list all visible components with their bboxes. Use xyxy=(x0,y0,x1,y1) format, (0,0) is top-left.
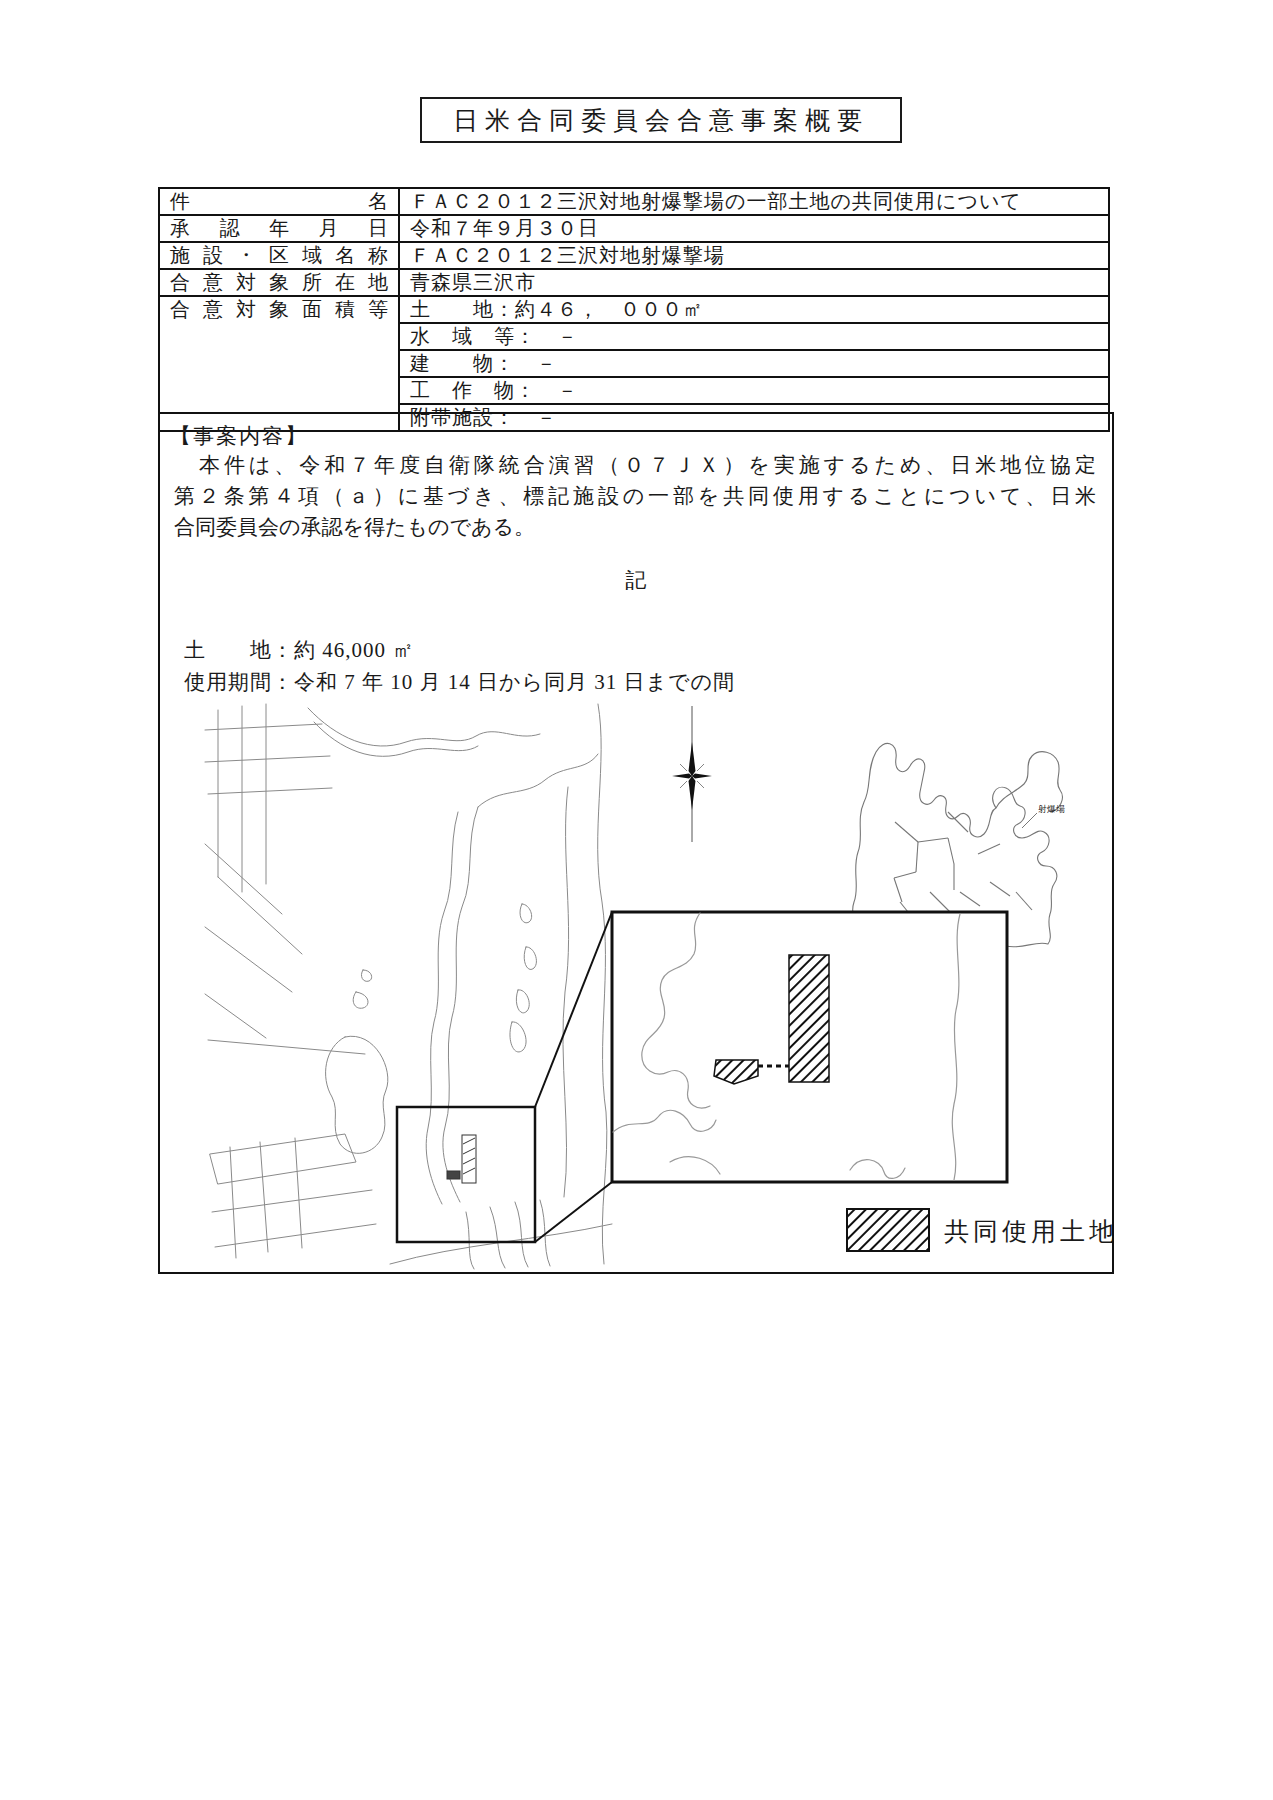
legend-hatch-swatch xyxy=(847,1209,929,1251)
aomori-map-label: 射爆場 xyxy=(1038,804,1065,814)
ki-marker: 記 xyxy=(160,566,1112,594)
land-area-line: 土 地：約 46,000 ㎡ xyxy=(184,636,414,664)
table-row: 合意対象所在地 青森県三沢市 xyxy=(159,269,1109,296)
row-facility-label: 施設・区域名称 xyxy=(159,242,399,269)
legend-label: 共同使用土地 xyxy=(944,1218,1112,1245)
case-content-heading: 【事案内容】 xyxy=(170,422,308,450)
compass-rose-icon xyxy=(672,706,712,842)
row-area-label: 合意対象面積等 xyxy=(159,296,399,431)
row-area-land: 土 地：約４６， ０００㎡ xyxy=(399,296,1109,323)
table-row: 承認年月日 令和７年９月３０日 xyxy=(159,215,1109,242)
row-name-label: 件名 xyxy=(159,188,399,215)
case-content-paragraph: 本件は、令和７年度自衛隊統合演習（０７ＪＸ）を実施するため、日米地位協定 第２条… xyxy=(174,450,1096,543)
row-approval-value: 令和７年９月３０日 xyxy=(399,215,1109,242)
paragraph-line: 第２条第４項（ａ）に基づき、標記施設の一部を共同使用することについて、日米 xyxy=(174,481,1096,512)
zoom-source-box xyxy=(397,912,612,1242)
row-name-value: ＦＡＣ２０１２三沢対地射爆撃場の一部土地の共同使用について xyxy=(399,188,1109,215)
row-area-water: 水 域 等： － xyxy=(399,323,1109,350)
map-legend: 共同使用土地 xyxy=(847,1209,1112,1251)
document-page: 日米合同委員会合意事案概要 件名 ＦＡＣ２０１２三沢対地射爆撃場の一部土地の共同… xyxy=(0,0,1273,1800)
table-row: 施設・区域名称 ＦＡＣ２０１２三沢対地射爆撃場 xyxy=(159,242,1109,269)
document-title: 日米合同委員会合意事案概要 xyxy=(453,104,869,137)
row-area-building: 建 物： － xyxy=(399,350,1109,377)
table-row: 合意対象面積等 土 地：約４６， ０００㎡ xyxy=(159,296,1109,323)
base-map xyxy=(205,704,612,1269)
document-title-box: 日米合同委員会合意事案概要 xyxy=(420,97,902,143)
row-area-structure: 工 作 物： － xyxy=(399,377,1109,404)
table-row: 件名 ＦＡＣ２０１２三沢対地射爆撃場の一部土地の共同使用について xyxy=(159,188,1109,215)
paragraph-line: 合同委員会の承認を得たものである。 xyxy=(174,512,1096,543)
map-figure: 射爆場 xyxy=(160,692,1112,1272)
summary-table: 件名 ＦＡＣ２０１２三沢対地射爆撃場の一部土地の共同使用について 承認年月日 令… xyxy=(158,187,1110,432)
paragraph-line: 本件は、令和７年度自衛隊統合演習（０７ＪＸ）を実施するため、日米地位協定 xyxy=(174,450,1096,481)
detail-inset-box xyxy=(612,912,1007,1182)
joint-use-land-main xyxy=(789,955,829,1082)
case-content-box: 【事案内容】 本件は、令和７年度自衛隊統合演習（０７ＪＸ）を実施するため、日米地… xyxy=(158,412,1114,1274)
row-location-label: 合意対象所在地 xyxy=(159,269,399,296)
row-facility-value: ＦＡＣ２０１２三沢対地射爆撃場 xyxy=(399,242,1109,269)
row-location-value: 青森県三沢市 xyxy=(399,269,1109,296)
row-approval-label: 承認年月日 xyxy=(159,215,399,242)
